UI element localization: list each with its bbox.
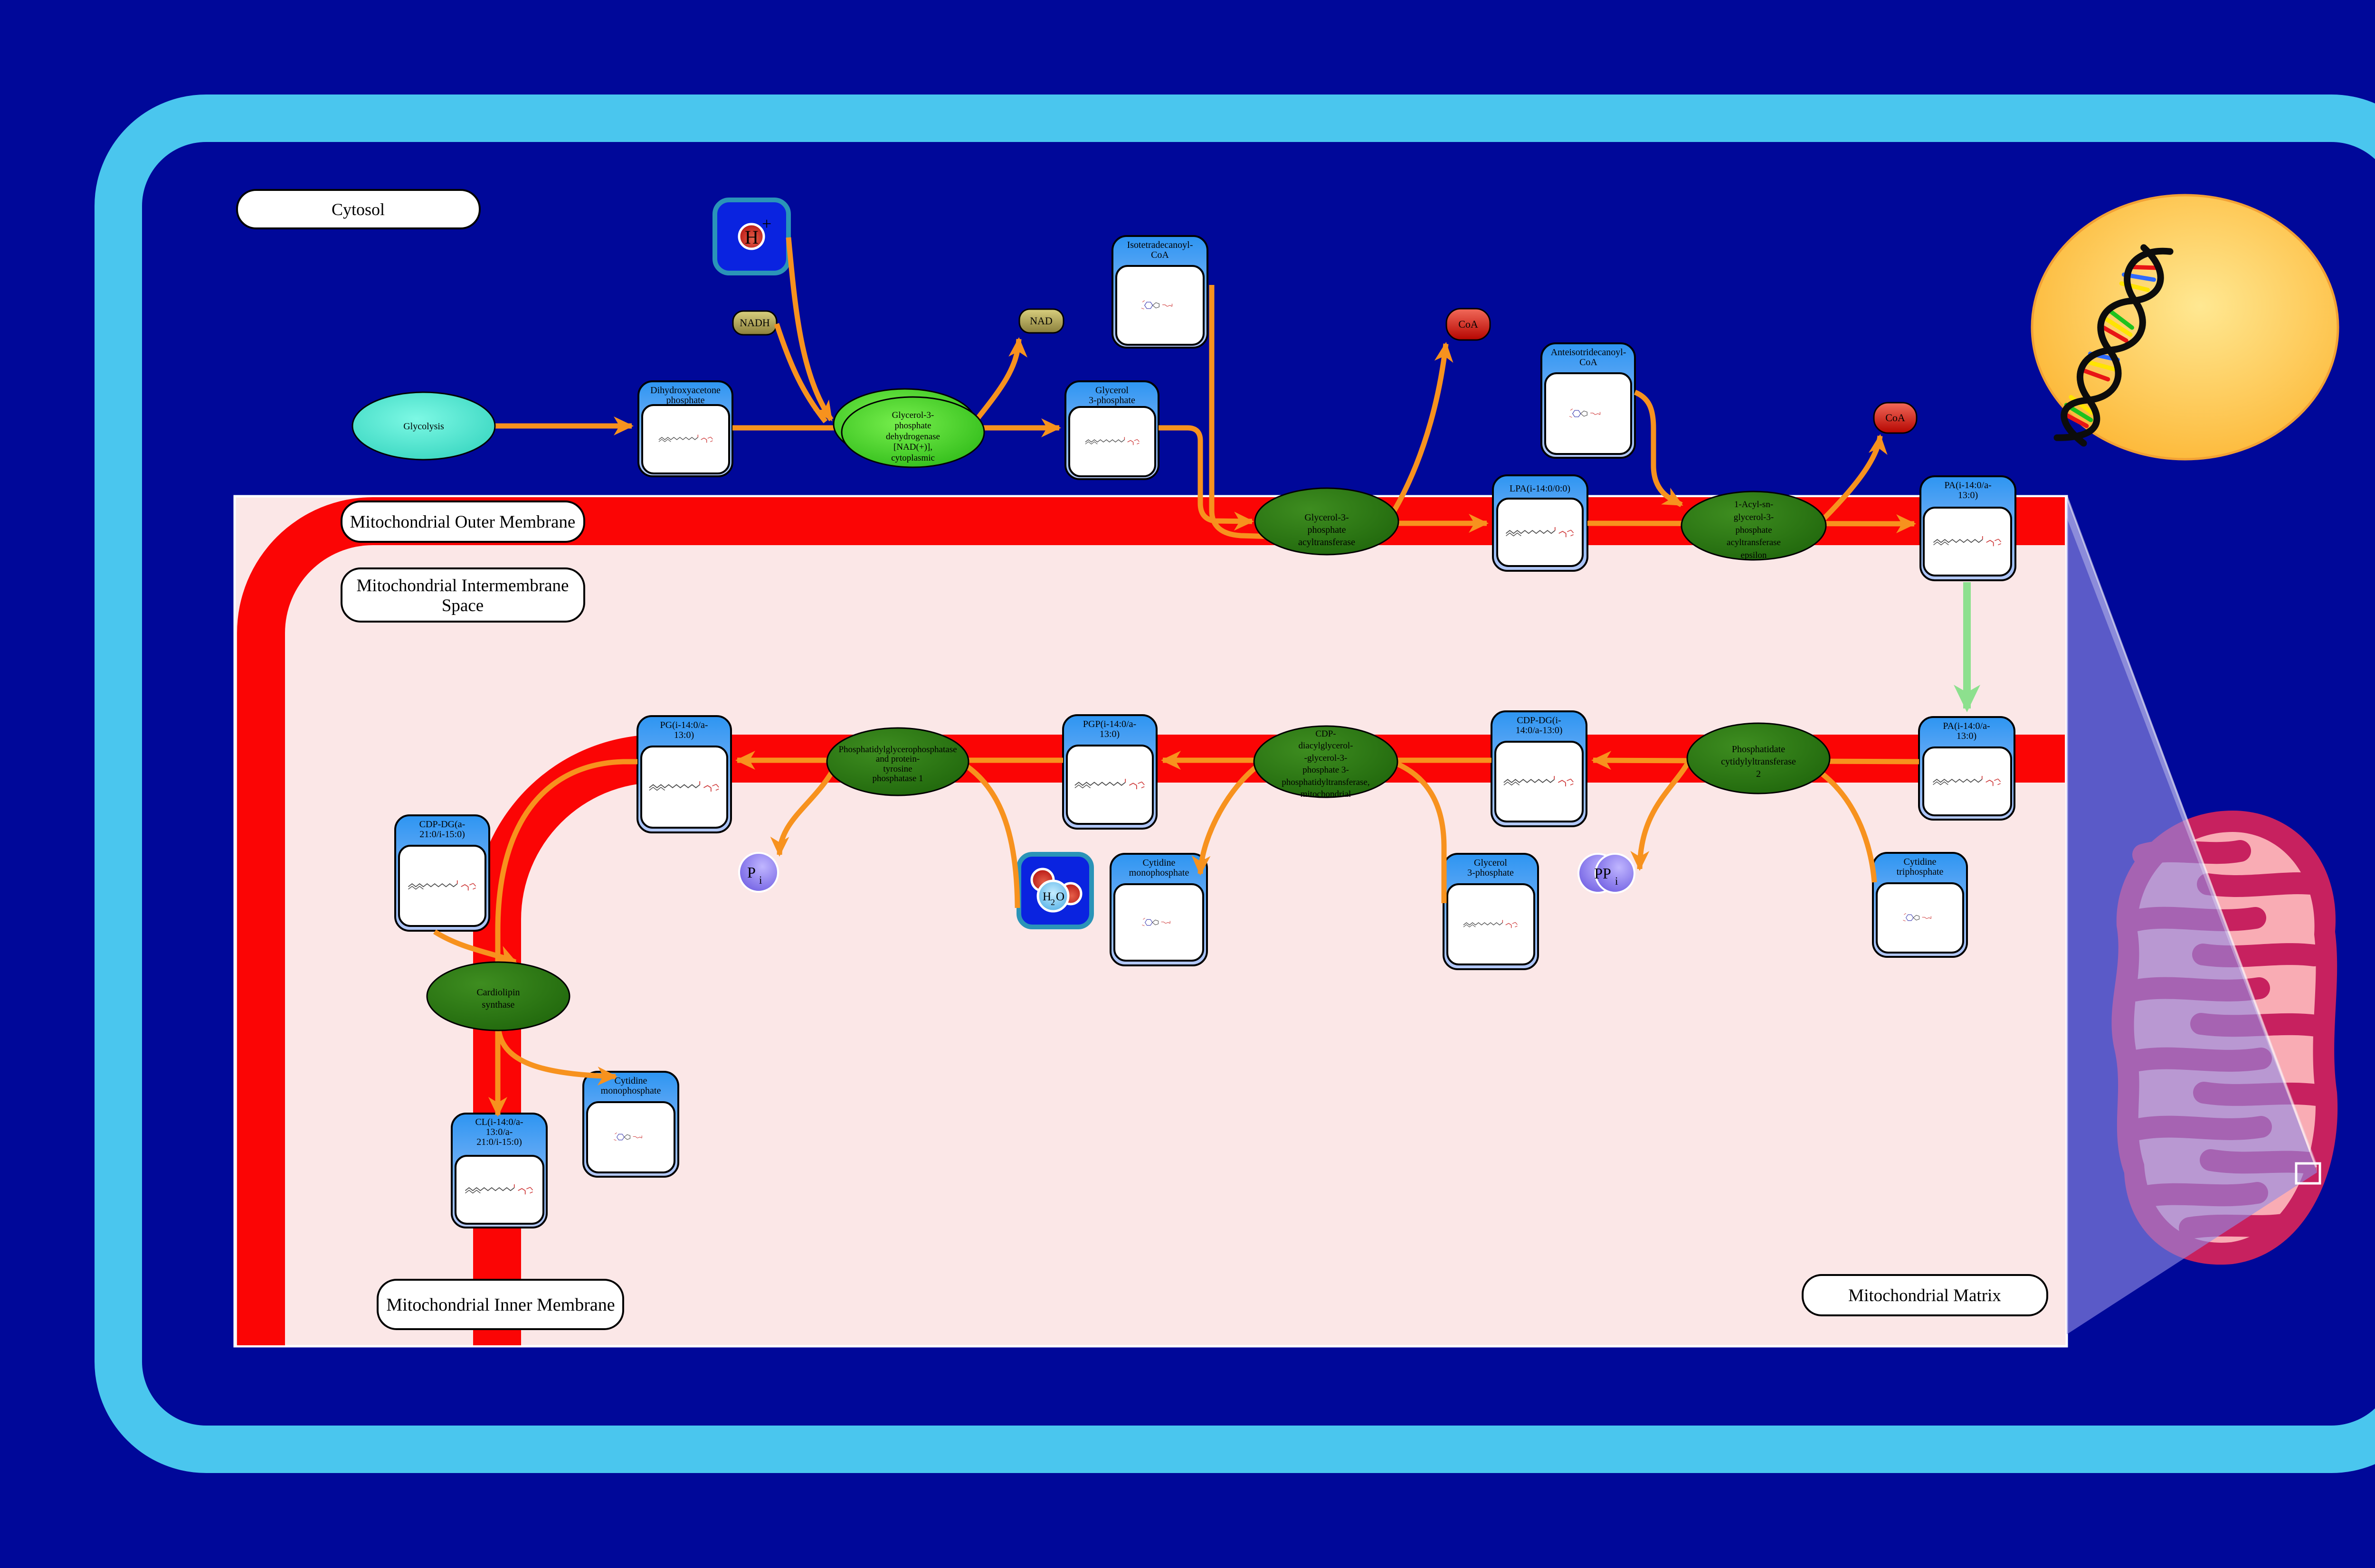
svg-text:Space: Space: [442, 596, 484, 615]
svg-text:H: H: [1043, 890, 1051, 903]
svg-text:21:0/i-15:0): 21:0/i-15:0): [476, 1137, 522, 1147]
svg-text:CDP-: CDP-: [1315, 729, 1336, 739]
svg-text:PP: PP: [1594, 865, 1611, 882]
svg-text:LPA(i-14:0/0:0): LPA(i-14:0/0:0): [1510, 483, 1570, 494]
svg-text:3-phosphate: 3-phosphate: [1467, 868, 1514, 878]
svg-text:14:0/a-13:0): 14:0/a-13:0): [1516, 725, 1563, 736]
svg-text:phosphate 3-: phosphate 3-: [1302, 765, 1349, 775]
svg-text:i: i: [759, 874, 762, 886]
svg-text:CDP-DG(i-: CDP-DG(i-: [1517, 715, 1561, 726]
svg-text:phosphate: phosphate: [666, 395, 704, 406]
svg-text:13:0/a-: 13:0/a-: [486, 1127, 513, 1137]
svg-text:synthase: synthase: [482, 1000, 515, 1010]
svg-text:phosphate: phosphate: [894, 421, 931, 431]
svg-text:13:0): 13:0): [1100, 729, 1120, 739]
svg-text:and protein-: and protein-: [876, 754, 920, 764]
svg-text:21:0/i-15:0): 21:0/i-15:0): [419, 829, 465, 840]
svg-text:monophosphate: monophosphate: [1129, 868, 1189, 878]
svg-text:+: +: [762, 214, 771, 233]
svg-text:13:0): 13:0): [1958, 490, 1978, 501]
svg-text:monophosphate: monophosphate: [601, 1086, 661, 1096]
svg-text:dehydrogenase: dehydrogenase: [886, 432, 940, 442]
svg-text:Mitochondrial Intermembrane: Mitochondrial Intermembrane: [357, 576, 569, 595]
svg-text:3-phosphate: 3-phosphate: [1089, 395, 1135, 406]
svg-text:1-Acyl-sn-: 1-Acyl-sn-: [1734, 500, 1773, 510]
svg-text:NADH: NADH: [740, 317, 770, 329]
svg-text:PA(i-14:0/a-: PA(i-14:0/a-: [1944, 480, 1991, 491]
svg-text:Isotetradecanoyl-: Isotetradecanoyl-: [1127, 240, 1193, 250]
svg-text:cytoplasmic: cytoplasmic: [891, 453, 935, 463]
svg-text:2: 2: [1756, 769, 1761, 779]
svg-text:Glycerol: Glycerol: [1095, 385, 1129, 396]
svg-text:Anteisotridecanoyl-: Anteisotridecanoyl-: [1551, 347, 1626, 358]
svg-text:Dihydroxyacetone: Dihydroxyacetone: [650, 385, 721, 396]
svg-text:O: O: [1056, 890, 1064, 903]
svg-text:phosphatase 1: phosphatase 1: [872, 774, 923, 784]
svg-text:Cytosol: Cytosol: [332, 200, 385, 219]
svg-text:phosphate: phosphate: [1307, 525, 1346, 535]
svg-text:H: H: [745, 227, 759, 248]
svg-text:Cytidine: Cytidine: [615, 1076, 647, 1086]
svg-text:Mitochondrial Inner Membrane: Mitochondrial Inner Membrane: [386, 1295, 615, 1315]
svg-text:mitochondrial: mitochondrial: [1301, 789, 1351, 799]
svg-text:Glycolysis: Glycolysis: [403, 421, 444, 432]
svg-text:Cytidine: Cytidine: [1143, 858, 1176, 868]
svg-text:phosphatidyltransferase,: phosphatidyltransferase,: [1282, 777, 1369, 787]
svg-text:CDP-DG(a-: CDP-DG(a-: [419, 819, 465, 830]
svg-text:PGP(i-14:0/a-: PGP(i-14:0/a-: [1083, 719, 1136, 729]
svg-text:epsilon: epsilon: [1741, 550, 1767, 560]
svg-text:Mitochondrial Outer Membrane: Mitochondrial Outer Membrane: [350, 512, 576, 532]
svg-text:NAD: NAD: [1030, 315, 1053, 327]
svg-text:[NAD(+)],: [NAD(+)],: [893, 442, 932, 452]
svg-text:acyltransferase: acyltransferase: [1727, 538, 1781, 548]
svg-text:Glycerol-3-: Glycerol-3-: [1304, 512, 1349, 523]
svg-text:CoA: CoA: [1579, 357, 1597, 368]
svg-text:glycerol-3-: glycerol-3-: [1734, 512, 1774, 522]
svg-text:phosphate: phosphate: [1735, 525, 1772, 535]
svg-text:Glycerol: Glycerol: [1474, 858, 1507, 868]
svg-text:PG(i-14:0/a-: PG(i-14:0/a-: [660, 720, 708, 730]
svg-text:Cardiolipin: Cardiolipin: [476, 987, 520, 998]
svg-text:CL(i-14:0/a-: CL(i-14:0/a-: [475, 1117, 523, 1127]
svg-text:CoA: CoA: [1151, 250, 1169, 260]
svg-text:diacylglycerol-: diacylglycerol-: [1298, 741, 1353, 751]
svg-text:-glycerol-3-: -glycerol-3-: [1304, 753, 1348, 763]
svg-text:2: 2: [1051, 897, 1055, 907]
svg-text:Phosphatidate: Phosphatidate: [1732, 744, 1785, 755]
svg-text:Glycerol-3-: Glycerol-3-: [892, 410, 934, 420]
svg-text:triphosphate: triphosphate: [1897, 867, 1944, 877]
svg-text:Mitochondrial Matrix: Mitochondrial Matrix: [1848, 1286, 2001, 1305]
svg-text:13:0): 13:0): [674, 730, 694, 740]
svg-text:tyrosine: tyrosine: [883, 764, 912, 774]
svg-text:i: i: [1615, 875, 1618, 887]
svg-text:13:0): 13:0): [1957, 731, 1976, 741]
svg-text:CoA: CoA: [1885, 412, 1905, 424]
svg-text:P: P: [747, 864, 756, 881]
svg-text:Phosphatidylglycerophosphatase: Phosphatidylglycerophosphatase: [838, 745, 957, 755]
svg-text:PA(i-14:0/a-: PA(i-14:0/a-: [1943, 721, 1990, 731]
svg-text:CoA: CoA: [1458, 318, 1478, 330]
svg-text:Cytidine: Cytidine: [1904, 857, 1937, 867]
svg-text:acyltransferase: acyltransferase: [1298, 537, 1355, 548]
svg-text:cytidylyltransferase: cytidylyltransferase: [1721, 756, 1796, 767]
